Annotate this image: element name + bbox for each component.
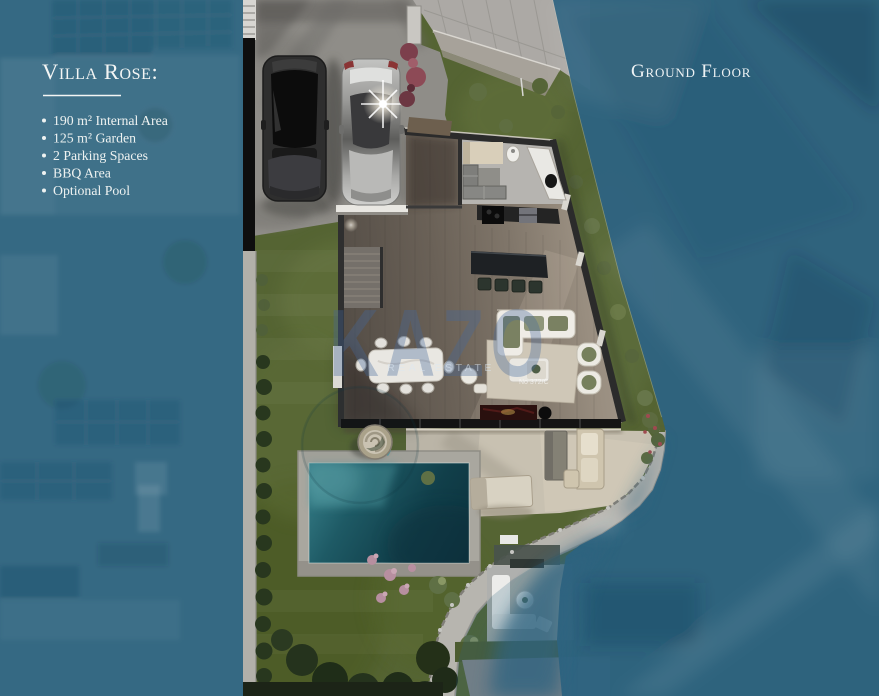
svg-text:190 m² Internal Area: 190 m² Internal Area bbox=[53, 113, 168, 128]
svg-text:No 372/C: No 372/C bbox=[519, 379, 549, 386]
svg-text:BBQ Area: BBQ Area bbox=[53, 166, 111, 181]
svg-text:Ground Floor: Ground Floor bbox=[631, 61, 751, 82]
svg-text:KAZO: KAZO bbox=[329, 289, 551, 397]
svg-text:REAL ESTATE: REAL ESTATE bbox=[387, 362, 495, 374]
svg-text:125 m² Garden: 125 m² Garden bbox=[53, 131, 136, 146]
svg-text:Villa Rose:: Villa Rose: bbox=[42, 59, 158, 84]
svg-text:2 Parking Spaces: 2 Parking Spaces bbox=[53, 148, 148, 163]
svg-text:Optional Pool: Optional Pool bbox=[53, 183, 130, 198]
